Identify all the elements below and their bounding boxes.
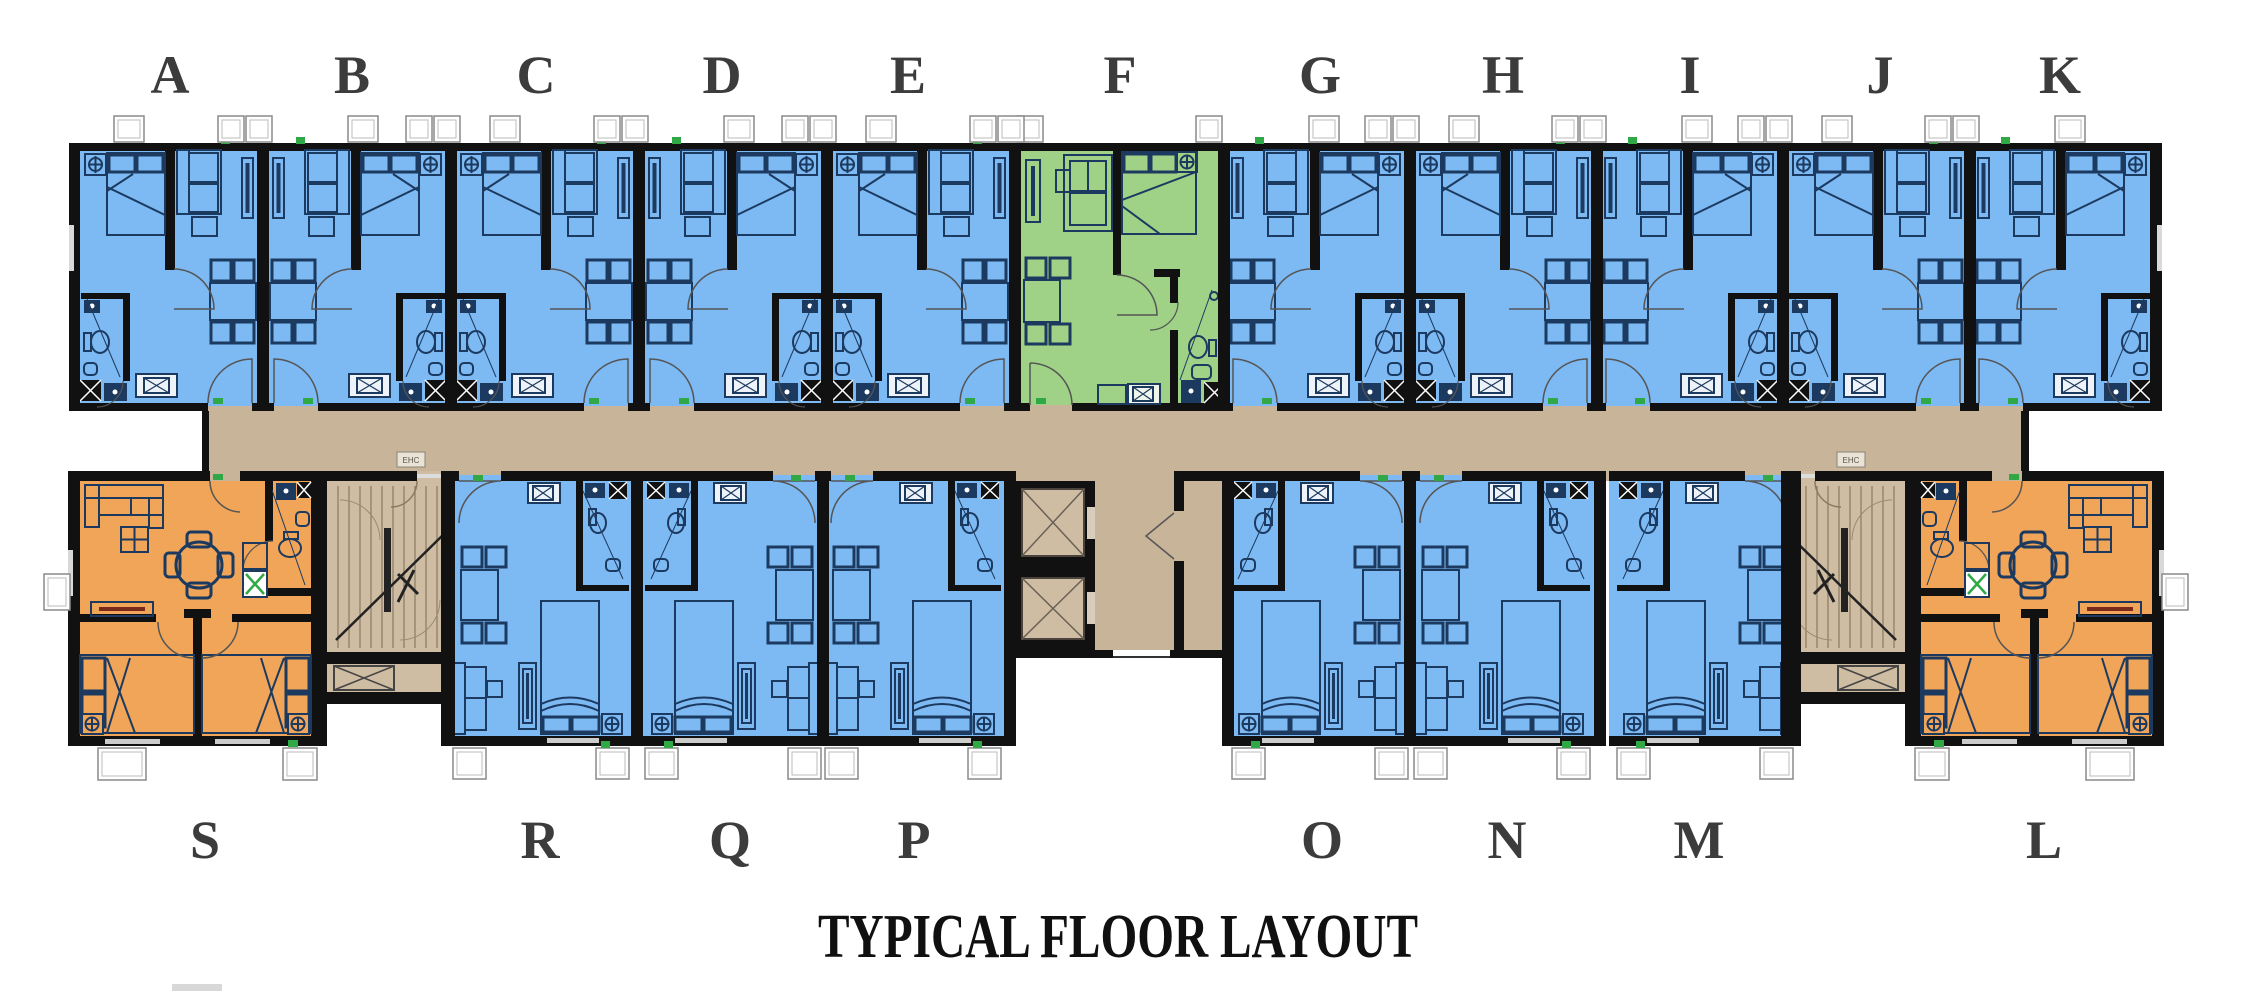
svg-text:R: R (521, 810, 561, 870)
svg-text:S: S (190, 810, 220, 870)
svg-text:A: A (151, 45, 190, 105)
svg-text:TYPICAL FLOOR LAYOUT: TYPICAL FLOOR LAYOUT (818, 903, 1418, 971)
svg-text:F: F (1104, 45, 1137, 105)
svg-text:H: H (1482, 45, 1524, 105)
svg-text:O: O (1301, 810, 1343, 870)
svg-text:M: M (1674, 810, 1725, 870)
svg-text:N: N (1488, 810, 1527, 870)
svg-text:EHC: EHC (403, 456, 420, 465)
svg-text:E: E (890, 45, 926, 105)
svg-text:B: B (334, 45, 370, 105)
svg-text:P: P (898, 810, 931, 870)
svg-text:J: J (1867, 45, 1894, 105)
svg-text:Q: Q (709, 810, 751, 870)
svg-text:C: C (517, 45, 556, 105)
svg-text:L: L (2026, 810, 2062, 870)
svg-text:EHC: EHC (1843, 456, 1860, 465)
svg-text:I: I (1679, 45, 1700, 105)
svg-text:G: G (1299, 45, 1341, 105)
svg-text:D: D (703, 45, 742, 105)
svg-text:K: K (2039, 45, 2081, 105)
